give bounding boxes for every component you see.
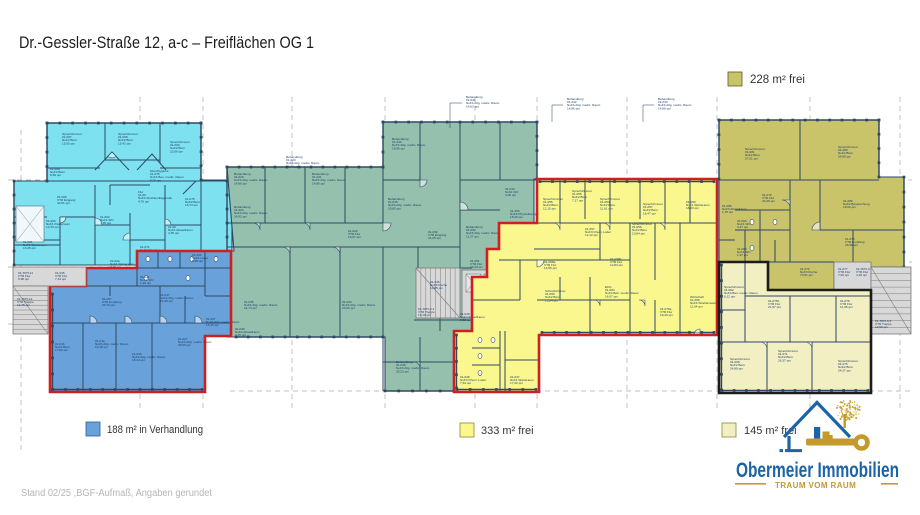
svg-text:01-058bVTR Flur12,84 qm: 01-058bVTR Flur12,84 qm [610,257,623,267]
svg-text:Stand 02/25 ,BGF-Aufmaß, Angab: Stand 02/25 ,BGF-Aufmaß, Angaben gerunde… [21,488,212,499]
svg-text:Dr.-Gessler-Straße 12, a-c – F: Dr.-Gessler-Straße 12, a-c – Freiflächen… [19,34,314,52]
svg-text:Behandlung01-042NuFb Allg. med: Behandlung01-042NuFb Allg. medic. Raum14… [567,97,601,110]
svg-text:01-058aVTR Flur14,95 qm: 01-058aVTR Flur14,95 qm [544,260,557,270]
svg-text:Behandlung01-043NuFb Allg. med: Behandlung01-043NuFb Allg. medic. Raum14… [658,97,692,110]
svg-text:188 m² in Verhandlung: 188 m² in Verhandlung [107,424,203,436]
svg-text:Obermeier Immobilien: Obermeier Immobilien [736,459,899,482]
svg-text:01-075bVTR Flur21,97 qm: 01-075bVTR Flur21,97 qm [768,299,781,309]
svg-text:333 m² frei: 333 m² frei [481,425,534,437]
svg-text:228 m² frei: 228 m² frei [750,74,805,86]
svg-text:TRAUM VOM RAUM: TRAUM VOM RAUM [775,481,856,490]
svg-text:Behandlung01-041NuFb Allg. med: Behandlung01-041NuFb Allg. medic. Raum14… [466,95,500,108]
svg-text:01-070aVTR Flur18,49 qm: 01-070aVTR Flur18,49 qm [660,307,673,317]
